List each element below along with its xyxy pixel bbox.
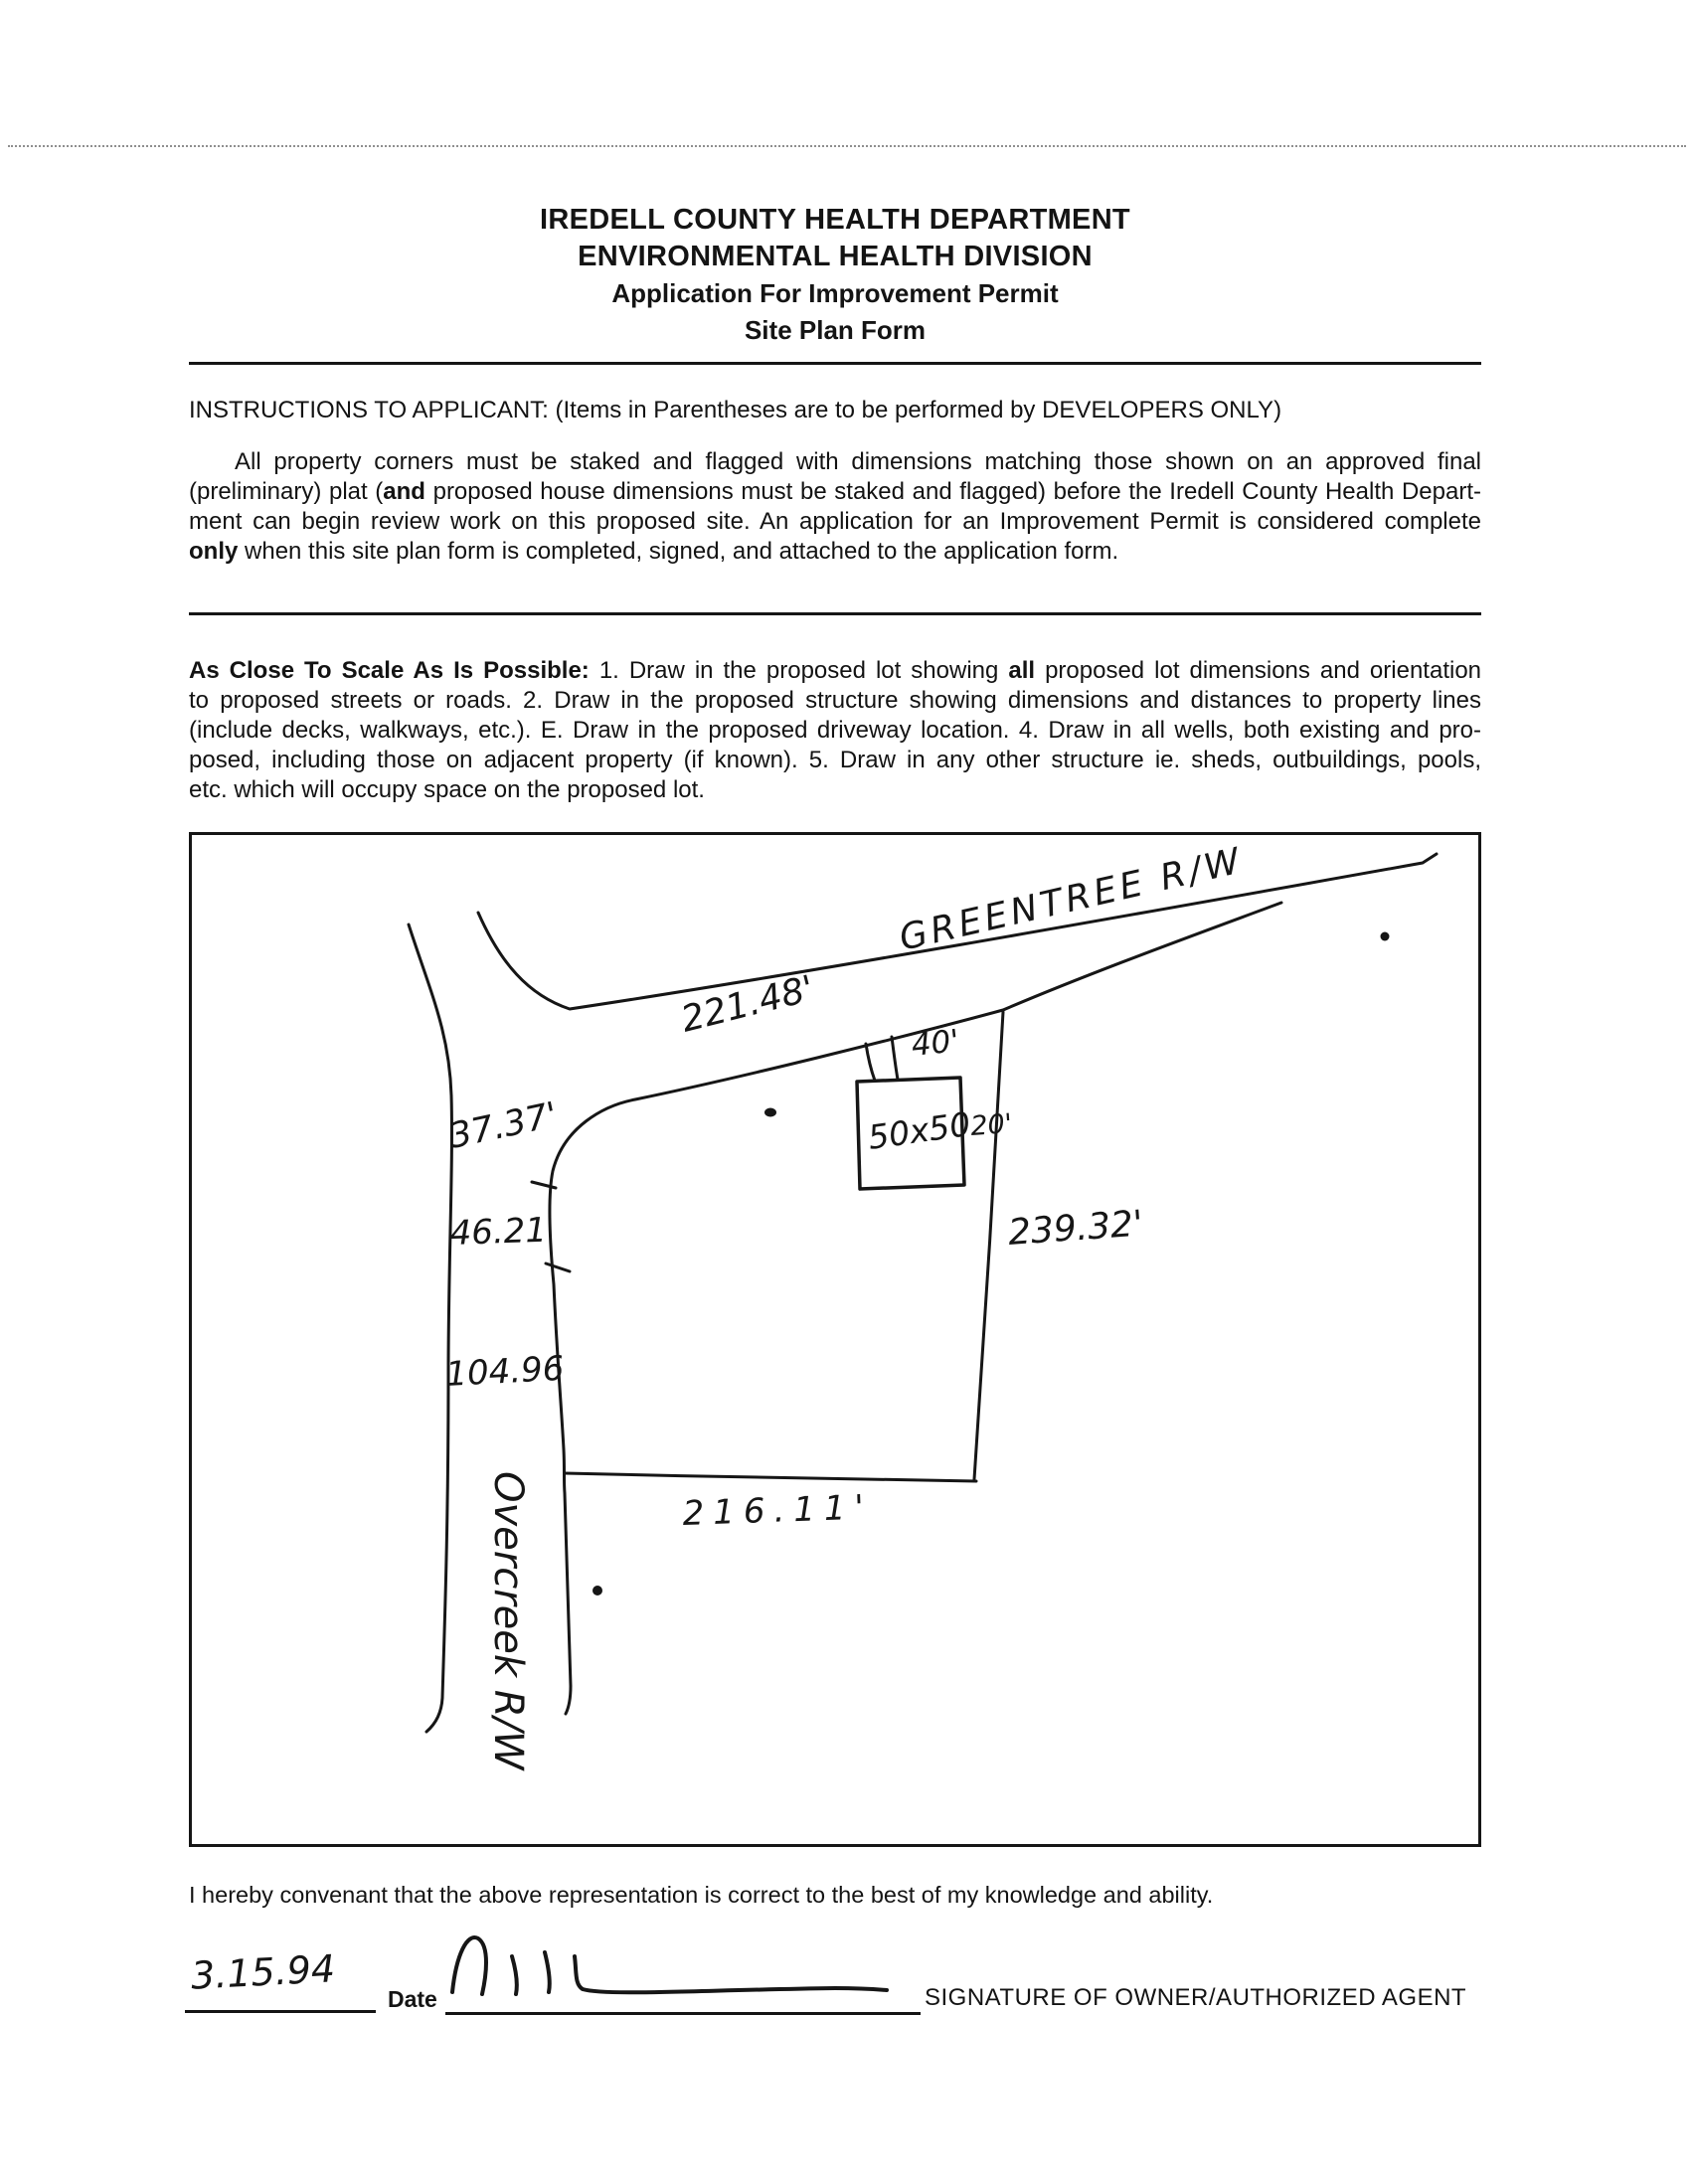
scale-line4: posed, including those on adjacent prope… [189, 746, 1481, 775]
site-plan-sketch: GREENTREE R/W 221.48' 40' 50x50 20' 239.… [192, 835, 1478, 1844]
scale-line2: to proposed streets or roads. 2. Draw in… [189, 686, 1481, 716]
scale-line3: (include decks, walkways, etc.). E. Draw… [189, 716, 1481, 746]
signature-stroke [452, 1937, 887, 1994]
signature-underline [445, 2012, 921, 2015]
para1-line4: only when this site plan form is complet… [189, 537, 1481, 567]
date-underline [185, 2010, 376, 2013]
scanned-site-plan-form: IREDELL COUNTY HEALTH DEPARTMENT ENVIRON… [0, 0, 1694, 2184]
form-title: Application For Improvement Permit [189, 275, 1481, 312]
covenant-statement: I hereby convenant that the above repres… [189, 1882, 1481, 1909]
scale-line1c: proposed lot dimensions and orientation [1035, 657, 1481, 684]
driveway-line-left [866, 1044, 875, 1081]
header-divider-rule [189, 362, 1481, 365]
west-lower-dimension: 104.96 [444, 1349, 565, 1395]
date-label: Date [388, 1986, 437, 2013]
scale-lead-bold: As Close To Scale As Is Possible: [189, 657, 590, 684]
form-header: IREDELL COUNTY HEALTH DEPARTMENT ENVIRON… [189, 202, 1481, 349]
house-size-label: 50x50 [866, 1104, 973, 1157]
north-boundary-dimension: 221.48' [677, 968, 818, 1041]
house-east-setback-dimension: 20' [969, 1108, 1013, 1142]
south-property-line [565, 1473, 976, 1481]
signature-label: SIGNATURE OF OWNER/AUTHORIZED AGENT [925, 1984, 1466, 2012]
para1-line1: All property corners must be staked and … [189, 447, 1481, 477]
well-dot-top-right [1381, 932, 1390, 941]
scale-instructions-paragraph: As Close To Scale As Is Possible: 1. Dra… [189, 656, 1481, 805]
para1-line4b: when this site plan form is completed, s… [238, 538, 1118, 565]
para1-line2-bold-and: and [383, 478, 425, 505]
scan-artifact-dotted-line [8, 145, 1686, 147]
survey-tick-lower [546, 1263, 570, 1271]
driveway-width-dimension: 40' [910, 1023, 960, 1064]
corner-curve-dimension: 37.37' [446, 1095, 562, 1157]
scale-line1: As Close To Scale As Is Possible: 1. Dra… [189, 656, 1481, 686]
section-divider-rule [189, 612, 1481, 615]
scale-line5: etc. which will occupy space on the prop… [189, 775, 1481, 805]
west-upper-dimension: 46.21 [449, 1211, 548, 1254]
overcreek-road-label: Overcreek R/W [485, 1471, 531, 1771]
form-subtitle: Site Plan Form [189, 312, 1481, 349]
instructions-heading: INSTRUCTIONS TO APPLICANT: (Items in Par… [189, 396, 1481, 425]
scale-line1-bold-all: all [1008, 657, 1035, 684]
east-boundary-dimension: 239.32' [1007, 1204, 1144, 1254]
para1-line4-bold-only: only [189, 538, 238, 565]
department-title: IREDELL COUNTY HEALTH DEPARTMENT [189, 202, 1481, 239]
well-dot-in-road [593, 1586, 602, 1596]
division-title: ENVIRONMENTAL HEALTH DIVISION [189, 239, 1481, 275]
south-boundary-dimension: 216.11' [682, 1487, 874, 1534]
instructions-paragraph: All property corners must be staked and … [189, 447, 1481, 567]
east-property-line [974, 1012, 1003, 1479]
handwritten-date-value: 3.15.94 [190, 1946, 336, 1998]
para1-line3: ment can begin review work on this propo… [189, 507, 1481, 537]
well-dot-near-house [764, 1108, 776, 1117]
para1-line2a: (preliminary) plat ( [189, 478, 383, 505]
greentree-lower-edge-and-west-property-line [550, 903, 1281, 1714]
handwritten-signature [437, 1927, 934, 2016]
para1-line2: (preliminary) plat (and proposed house d… [189, 477, 1481, 507]
scale-line1a: 1. Draw in the proposed lot showing [590, 657, 1009, 684]
site-plan-drawing-area: GREENTREE R/W 221.48' 40' 50x50 20' 239.… [189, 832, 1481, 1847]
para1-line2c: proposed house dimensions must be staked… [425, 478, 1481, 505]
driveway-line-right [892, 1037, 898, 1080]
overcreek-road-left-edge [409, 924, 451, 1732]
signature-scrawl [437, 1927, 934, 2016]
greentree-road-label: GREENTREE R/W [896, 840, 1248, 959]
